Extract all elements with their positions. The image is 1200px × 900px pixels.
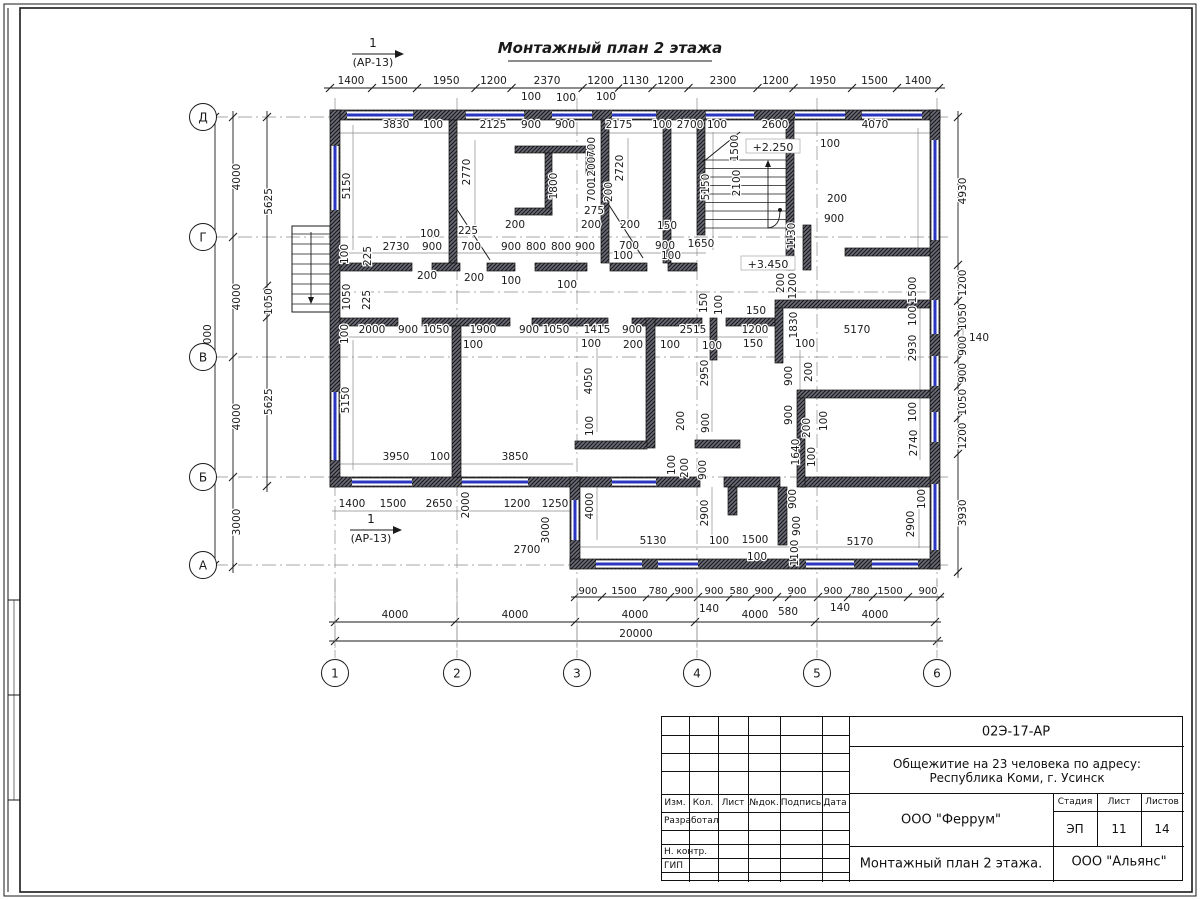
- dim-label: 1500: [877, 586, 902, 597]
- dim-label: Б: [199, 471, 207, 485]
- dim-label: 200: [417, 270, 437, 282]
- dim-label: 1130: [622, 75, 649, 87]
- dim-label: 2000: [359, 324, 386, 336]
- dim-label: 200: [803, 362, 815, 382]
- dim-label: 100: [420, 228, 440, 240]
- dim-label: 5150: [340, 387, 352, 414]
- dim-label: 5625: [263, 188, 275, 215]
- dim-label: В: [199, 351, 207, 365]
- dim-label: 900: [824, 213, 844, 225]
- dim-label: 2900: [905, 511, 917, 538]
- dim-label: 1200: [504, 498, 531, 510]
- dim-label: 2: [453, 667, 461, 681]
- stairs: [292, 132, 786, 312]
- dim-label: 800: [551, 241, 571, 253]
- dim-label: 2650: [426, 498, 453, 510]
- dim-label: 1250: [542, 498, 569, 510]
- dim-label: 1: [369, 36, 377, 50]
- ncontrol-label: Н. контр.: [664, 847, 707, 857]
- dim-label: 1200: [762, 75, 789, 87]
- dim-label: 200: [827, 193, 847, 205]
- dim-label: 900: [521, 119, 541, 131]
- dim-label: 225: [361, 290, 373, 310]
- dim-label: 1: [331, 667, 339, 681]
- dim-label: 5: [813, 667, 821, 681]
- dim-label: 900: [519, 324, 539, 336]
- stage-label: Стадия: [1058, 797, 1093, 807]
- dim-label: 900: [918, 586, 937, 597]
- dim-label: (АР-13): [353, 56, 394, 69]
- dim-label: 780: [648, 586, 667, 597]
- dim-label: 900: [783, 405, 795, 425]
- col-podpis: Подпись: [781, 798, 821, 808]
- dim-label: 200: [603, 182, 615, 202]
- dim-label: 4000: [584, 493, 596, 520]
- dim-label: 4000: [502, 609, 529, 621]
- dim-label: 100: [713, 295, 725, 315]
- dim-label: 200: [623, 339, 643, 351]
- dim-label: 900: [787, 489, 799, 509]
- dim-label: 3950: [383, 451, 410, 463]
- dim-label: 1200: [957, 270, 969, 297]
- dim-label: 100: [581, 338, 601, 350]
- dim-label: +2.250: [753, 141, 794, 154]
- dim-label: 150: [657, 220, 677, 232]
- dim-label: 2300: [710, 75, 737, 87]
- dim-label: 1800: [548, 173, 560, 200]
- dim-label: 150: [743, 338, 763, 350]
- dim-label: 4070: [862, 119, 889, 131]
- dim-label: 700: [461, 241, 481, 253]
- dim-label: 200: [775, 273, 787, 293]
- dim-label: 3850: [502, 451, 529, 463]
- dim-label: 1500: [381, 75, 408, 87]
- dim-label: 200: [675, 411, 687, 431]
- dim-label: 200: [505, 219, 525, 231]
- dim-label: 5170: [844, 324, 871, 336]
- dim-label: 700: [586, 137, 598, 157]
- dim-label: 1050: [957, 389, 969, 416]
- dim-label: 4000: [622, 609, 649, 621]
- dim-label: 3: [573, 667, 581, 681]
- dim-label: 200: [679, 458, 691, 478]
- dim-label: 4930: [957, 178, 969, 205]
- dim-label: 1640: [790, 439, 802, 466]
- dim-label: (АР-13): [351, 532, 392, 545]
- dim-label: 1500: [742, 534, 769, 546]
- dim-label: 900: [791, 516, 803, 536]
- dim-label: 1500: [861, 75, 888, 87]
- dim-label: 100: [818, 411, 830, 431]
- col-data: Дата: [823, 798, 846, 808]
- dim-label: +3.450: [748, 258, 789, 271]
- dim-label: 2740: [908, 430, 920, 457]
- col-izm: Изм.: [664, 798, 685, 808]
- col-kol: Кол.: [693, 798, 714, 808]
- dim-label: 2370: [534, 75, 561, 87]
- dim-label: 1500: [729, 135, 741, 162]
- dim-label: 225: [458, 225, 478, 237]
- dim-label: 100: [907, 306, 919, 326]
- dim-label: 900: [501, 241, 521, 253]
- dim-label: 140: [969, 332, 989, 344]
- dim-label: 2175: [606, 119, 633, 131]
- dim-label: 900: [700, 413, 712, 433]
- dim-label: 1050: [957, 303, 969, 330]
- dim-label: 900: [555, 119, 575, 131]
- dim-label: 900: [674, 586, 693, 597]
- dim-label: 100: [907, 402, 919, 422]
- dim-label: 100: [666, 455, 678, 475]
- dim-label: 100: [521, 91, 541, 103]
- dim-label: 100: [557, 279, 577, 291]
- dim-label: 700: [586, 182, 598, 202]
- dim-label: 2730: [383, 241, 410, 253]
- dim-label: 2950: [699, 360, 711, 387]
- dim-label: 4: [693, 667, 701, 681]
- dim-label: 4000: [231, 164, 243, 191]
- dim-label: 100: [709, 535, 729, 547]
- dim-label: 6: [933, 667, 941, 681]
- dim-label: 225: [362, 246, 374, 266]
- dim-label: 900: [787, 586, 806, 597]
- dim-label: 1130: [786, 223, 798, 250]
- dim-label: Г: [199, 231, 206, 245]
- dim-label: 580: [778, 606, 798, 618]
- dim-label: 2720: [614, 155, 626, 182]
- col-list: Лист: [722, 798, 745, 808]
- dim-label: 3000: [540, 517, 552, 544]
- dim-label: 900: [575, 241, 595, 253]
- dim-label: 2000: [460, 492, 472, 519]
- dim-label: 2125: [480, 119, 507, 131]
- contractor-company: ООО "Альянс": [1071, 855, 1166, 870]
- dim-label: 100: [423, 119, 443, 131]
- dim-label: 1050: [341, 284, 353, 311]
- dim-label: 100: [556, 92, 576, 104]
- dim-label: 5150: [700, 174, 712, 201]
- dim-label: 2900: [699, 500, 711, 527]
- dim-label: 4050: [583, 368, 595, 395]
- dim-label: 900: [578, 586, 597, 597]
- dim-label: 900: [622, 324, 642, 336]
- dim-label: 100: [501, 275, 521, 287]
- dim-label: 140: [699, 603, 719, 615]
- dim-label: 900: [422, 241, 442, 253]
- dim-label: 100: [339, 244, 351, 264]
- dim-label: 1400: [338, 75, 365, 87]
- dim-label: 200: [464, 272, 484, 284]
- dim-label: 200: [801, 418, 813, 438]
- dim-label: Д: [198, 111, 207, 125]
- dim-label: 1050: [263, 288, 275, 315]
- dim-label: 3830: [383, 119, 410, 131]
- designer-company: ООО "Феррум": [901, 813, 1001, 828]
- dim-label: 100: [747, 551, 767, 563]
- dim-label: 100: [707, 119, 727, 131]
- dim-label: 2515: [680, 324, 707, 336]
- dim-label: 3930: [957, 499, 969, 526]
- dim-label: 1200: [742, 324, 769, 336]
- dim-label: 100: [806, 447, 818, 467]
- dim-label: 900: [697, 460, 709, 480]
- dim-label: 200: [581, 219, 601, 231]
- sheets-value: 14: [1154, 822, 1169, 836]
- sheets-label: Листов: [1145, 797, 1179, 807]
- dim-label: 5625: [263, 388, 275, 415]
- stage-value: ЭП: [1066, 822, 1083, 836]
- dim-label: 150: [746, 305, 766, 317]
- axis-grid-lines: [214, 98, 948, 658]
- dim-label: 100: [584, 416, 596, 436]
- dim-label: 1100: [789, 540, 801, 567]
- col-ndok: №док.: [749, 798, 778, 808]
- sheet-value: 11: [1111, 822, 1126, 836]
- gip-label: ГИП: [664, 861, 683, 871]
- dim-label: 1400: [339, 498, 366, 510]
- dim-label: 1: [367, 512, 375, 526]
- dim-label: 1200: [657, 75, 684, 87]
- dim-label: 200: [620, 219, 640, 231]
- dim-label: 100: [795, 338, 815, 350]
- dim-label: 800: [526, 241, 546, 253]
- dim-label: 1050: [543, 324, 570, 336]
- dim-label: 1830: [788, 312, 800, 339]
- dim-label: 2770: [461, 159, 473, 186]
- dim-label: 1500: [380, 498, 407, 510]
- dim-label: 900: [754, 586, 773, 597]
- dim-label: 100: [613, 250, 633, 262]
- dim-label: 1200: [957, 423, 969, 450]
- dim-label: 100: [652, 119, 672, 131]
- dim-label: 900: [704, 586, 723, 597]
- dim-label: 1900: [470, 324, 497, 336]
- dim-label: 900: [398, 324, 418, 336]
- dim-label: 1500: [611, 586, 636, 597]
- dim-label: 2930: [907, 335, 919, 362]
- dim-label: 100: [596, 91, 616, 103]
- dim-label: 900: [957, 336, 969, 356]
- dim-label: 20000: [619, 628, 652, 640]
- dim-label: 2100: [731, 170, 743, 197]
- dim-label: 140: [830, 602, 850, 614]
- dim-label: 100: [660, 339, 680, 351]
- drawing-title: Монтажный план 2 этажа: [498, 39, 722, 57]
- dim-label: 4000: [231, 284, 243, 311]
- drawing-name: Монтажный план 2 этажа.: [860, 857, 1043, 872]
- document-number: 02Э-17-АР: [982, 725, 1050, 740]
- dim-label: 100: [661, 250, 681, 262]
- dim-label: 100: [702, 340, 722, 352]
- dim-label: 100: [916, 489, 928, 509]
- dim-label: 900: [957, 363, 969, 383]
- dim-label: 2700: [514, 544, 541, 556]
- dim-label: 1050: [423, 324, 450, 336]
- dim-label: 100: [339, 324, 351, 344]
- dim-label: 780: [850, 586, 869, 597]
- dim-label: 3000: [231, 509, 243, 536]
- dim-label: 580: [729, 586, 748, 597]
- sheet-label: Лист: [1108, 797, 1131, 807]
- dim-label: 2700: [677, 119, 704, 131]
- dimension-labels: 1400150019501200237012001130120023001200…: [202, 75, 989, 640]
- dim-label: 4000: [382, 609, 409, 621]
- dim-label: 100: [820, 138, 840, 150]
- dim-label: 1200: [480, 75, 507, 87]
- dim-label: 275: [584, 205, 604, 217]
- project-name: Общежитие на 23 человека по адресу: Респ…: [852, 757, 1182, 785]
- dim-label: 900: [823, 586, 842, 597]
- dim-label: 1200: [586, 157, 598, 184]
- dim-label: 900: [783, 366, 795, 386]
- dim-label: 1500: [907, 277, 919, 304]
- dim-label: 4000: [862, 609, 889, 621]
- dim-label: 5150: [341, 173, 353, 200]
- dim-label: 4000: [231, 404, 243, 431]
- dim-label: 100: [430, 451, 450, 463]
- dim-label: 2600: [762, 119, 789, 131]
- dim-label: 5130: [640, 535, 667, 547]
- dim-label: 1950: [433, 75, 460, 87]
- dim-label: 5170: [847, 536, 874, 548]
- dim-label: 1200: [587, 75, 614, 87]
- title-block: 02Э-17-АР Общежитие на 23 человека по ад…: [661, 716, 1183, 881]
- dim-label: 150: [698, 293, 710, 313]
- dim-label: 4000: [742, 609, 769, 621]
- developed-label: Разработал: [664, 816, 719, 826]
- dim-label: 1650: [688, 238, 715, 250]
- drawing-sheet: { "header": { "title": "Монтажный план 2…: [0, 0, 1200, 900]
- dim-label: 1400: [905, 75, 932, 87]
- dim-label: 1200: [787, 273, 799, 300]
- dim-label: А: [199, 559, 208, 573]
- dim-label: 1415: [584, 324, 611, 336]
- dim-label: 1950: [809, 75, 836, 87]
- dim-label: 100: [463, 339, 483, 351]
